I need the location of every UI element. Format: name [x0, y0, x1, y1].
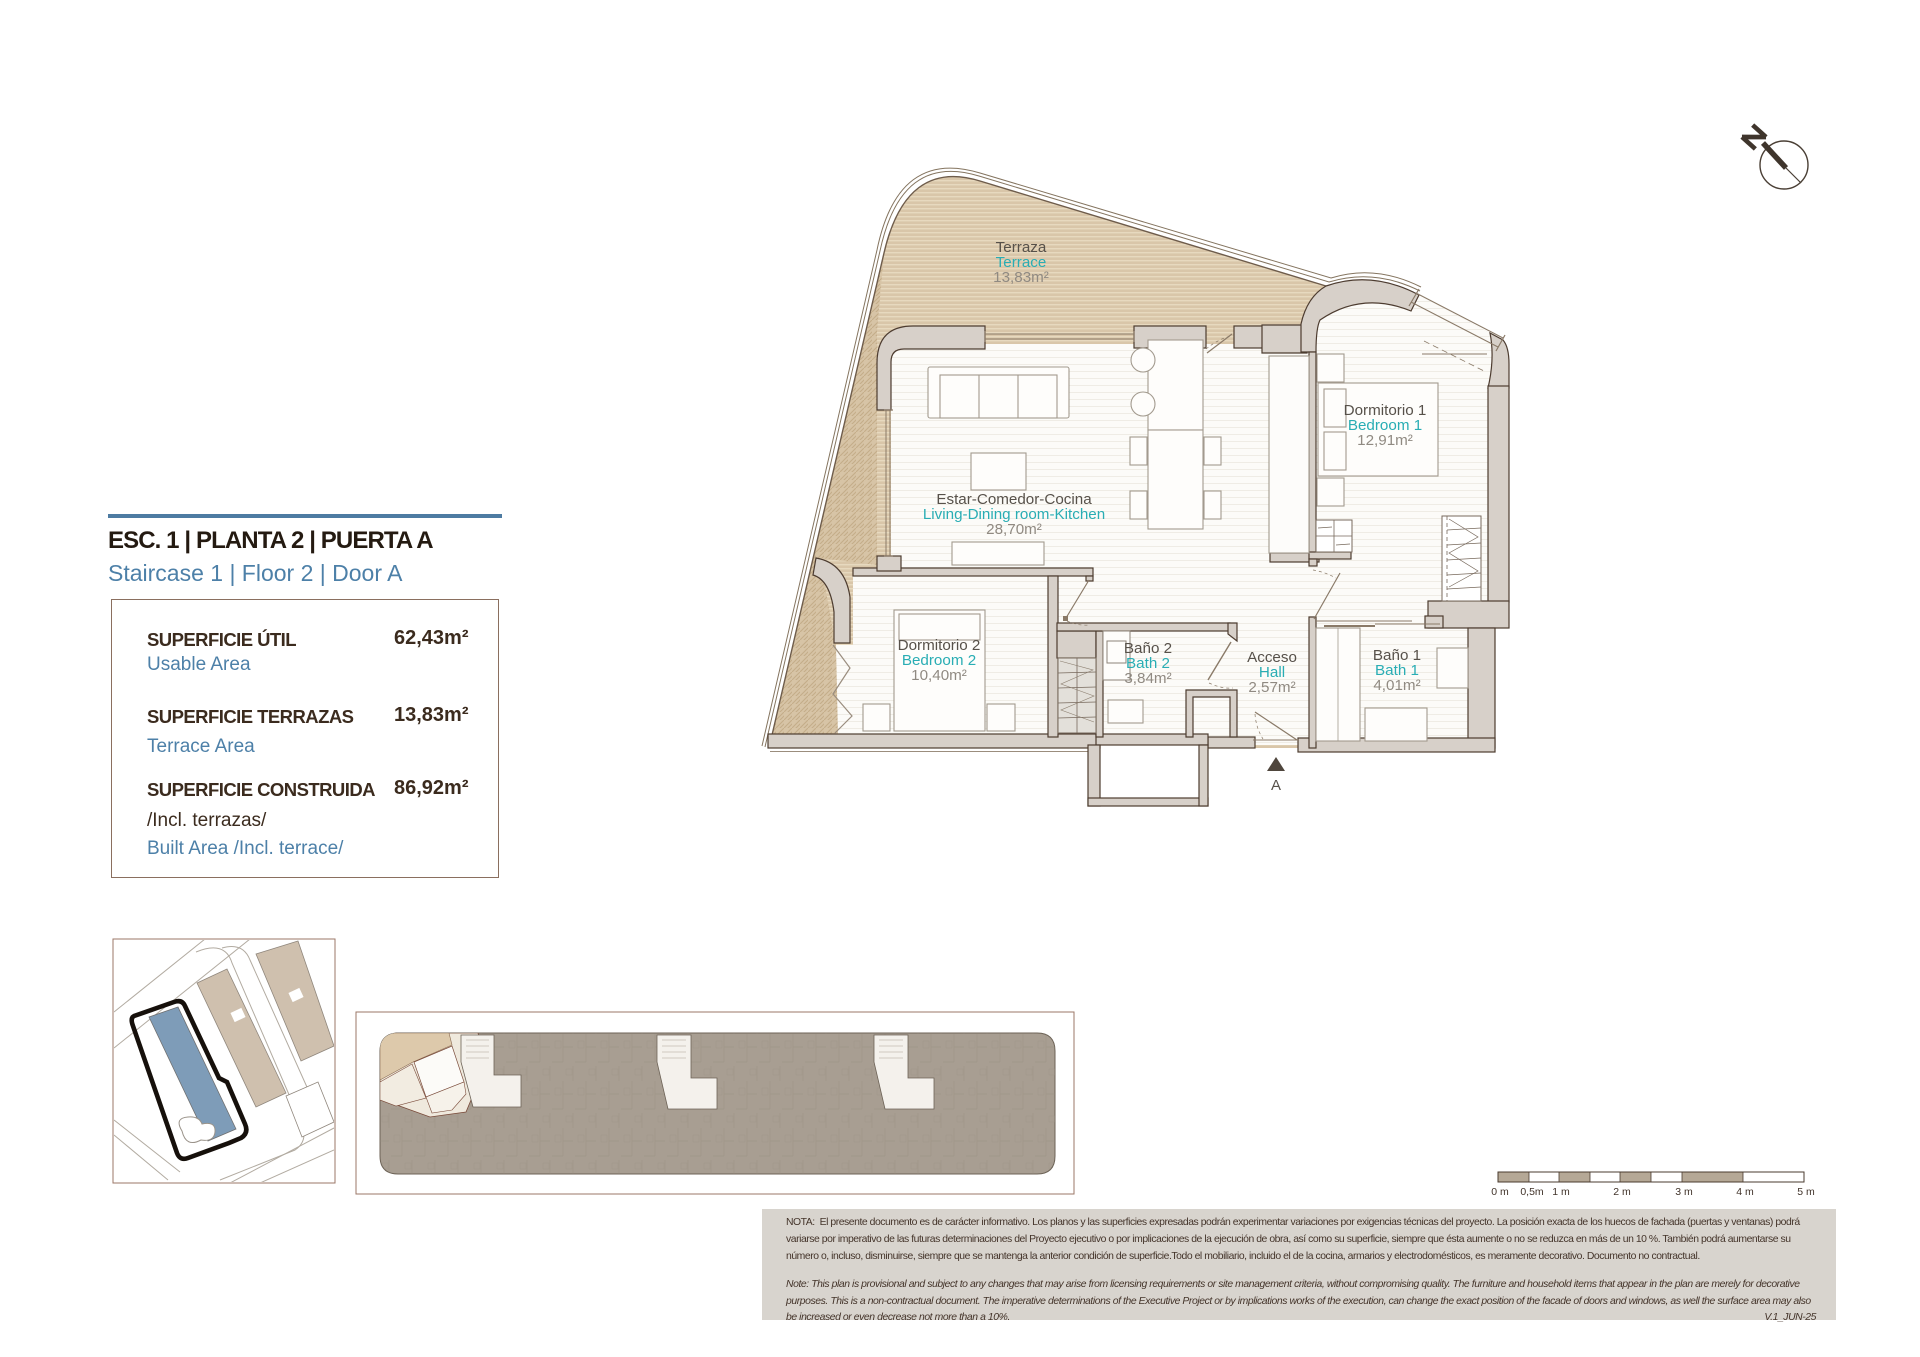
- svg-text:2 m: 2 m: [1613, 1186, 1631, 1198]
- svg-text:10,40m²: 10,40m²: [911, 667, 967, 684]
- svg-text:3,84m²: 3,84m²: [1124, 670, 1171, 687]
- svg-text:3 m: 3 m: [1675, 1186, 1693, 1198]
- svg-text:4,01m²: 4,01m²: [1373, 677, 1420, 694]
- svg-text:4 m: 4 m: [1736, 1186, 1754, 1198]
- svg-text:5 m: 5 m: [1797, 1186, 1815, 1198]
- svg-text:A: A: [1271, 777, 1281, 794]
- svg-text:12,91m²: 12,91m²: [1357, 432, 1413, 449]
- svg-text:2,57m²: 2,57m²: [1248, 679, 1295, 696]
- svg-text:1 m: 1 m: [1552, 1186, 1570, 1198]
- svg-text:0,5m: 0,5m: [1520, 1186, 1544, 1198]
- svg-text:13,83m²: 13,83m²: [993, 269, 1049, 286]
- svg-text:0 m: 0 m: [1491, 1186, 1509, 1198]
- svg-text:28,70m²: 28,70m²: [986, 521, 1042, 538]
